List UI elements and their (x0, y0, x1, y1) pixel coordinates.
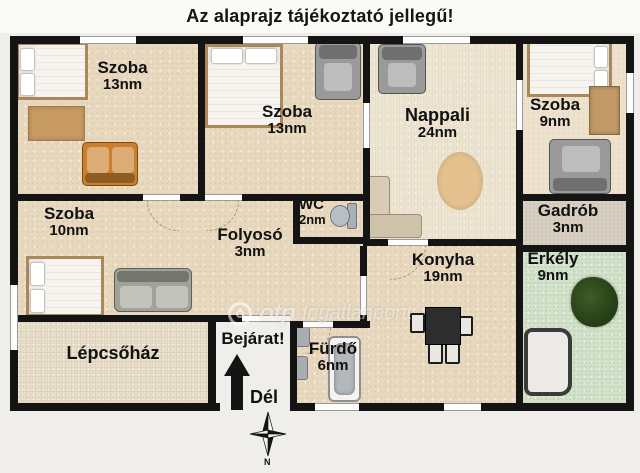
entrance-label: Bejárat! (205, 329, 301, 349)
room-name: Folyosó (200, 226, 300, 244)
window (403, 36, 470, 44)
watermark-brand: otp (259, 299, 295, 328)
door-opening (205, 194, 242, 201)
chair-icon (445, 342, 460, 364)
floor-plan: Az alaprajz tájékoztató jellegű! (0, 0, 640, 473)
room-name: Lépcsőház (48, 344, 178, 363)
oval-rug-icon (437, 152, 483, 210)
armchair-icon (378, 44, 426, 94)
room-label-wc: WC 2nm (299, 197, 333, 227)
wall (363, 36, 370, 103)
door-opening (388, 239, 428, 246)
dining-table-icon (425, 307, 461, 345)
toilet-icon (330, 205, 350, 227)
room-area: 3nm (200, 244, 300, 260)
wall (293, 237, 370, 244)
watermark-ring-icon (228, 302, 252, 326)
door-opening (143, 194, 180, 201)
armchair-icon (549, 139, 611, 194)
room-area: 19nm (393, 269, 493, 285)
room-label-szoba-10: Szoba 10nm (19, 205, 119, 240)
door-opening (363, 103, 370, 148)
window (80, 36, 136, 44)
chair-icon (428, 342, 443, 364)
room-name: Fürdő (302, 340, 364, 358)
room-area: 10nm (19, 223, 119, 239)
arrow-up-icon (231, 374, 243, 410)
room-name: Konyha (393, 251, 493, 269)
room-area: 9nm (503, 268, 603, 284)
compass-rose-icon (246, 411, 290, 457)
direction-label: Dél (250, 387, 278, 408)
wall (428, 239, 523, 246)
room-label-folyoso: Folyosó 3nm (200, 226, 300, 261)
room-name: Erkély (503, 250, 603, 268)
room-name: Szoba (70, 59, 175, 77)
room-label-erkely: Erkély 9nm (503, 250, 603, 285)
wall (516, 130, 523, 201)
page-title: Az alaprajz tájékoztató jellegű! (186, 6, 453, 27)
watermark-logo: otp Ingatlanpont (228, 299, 412, 328)
wall (516, 194, 634, 201)
wall (363, 239, 388, 246)
wall (516, 36, 523, 80)
room-label-nappali: Nappali 24nm (385, 106, 490, 142)
wall (10, 36, 18, 411)
arrow-up-icon (224, 354, 250, 376)
room-label-lepcsohaz: Lépcsőház (48, 344, 178, 363)
room-label-konyha: Konyha 19nm (393, 251, 493, 286)
room-area: 6nm (302, 358, 364, 374)
title-band: Az alaprajz tájékoztató jellegű! (0, 0, 640, 33)
room-label-szoba-9: Szoba 9nm (507, 96, 603, 131)
room-name: Szoba (237, 103, 337, 121)
armchair-icon (315, 42, 361, 100)
wall (10, 315, 242, 322)
sofa-icon (82, 142, 138, 186)
window (315, 403, 359, 411)
wall (10, 194, 143, 201)
room-area: 13nm (237, 121, 337, 137)
chair-icon (410, 313, 425, 333)
room-area: 9nm (507, 114, 603, 130)
window (10, 285, 18, 350)
bench-icon (524, 328, 572, 396)
rug-icon (28, 106, 85, 141)
room-label-szoba-2: Szoba 13nm (237, 103, 337, 138)
room-name: Szoba (507, 96, 603, 114)
room-area: 24nm (385, 125, 490, 141)
wall (180, 194, 205, 201)
corner-sofa-icon (366, 214, 422, 238)
room-label-gadrob: Gadrób 3nm (518, 202, 618, 237)
room-area: 2nm (299, 213, 333, 227)
room-name: Nappali (385, 106, 490, 125)
wall (198, 36, 205, 201)
window (626, 73, 634, 113)
watermark-suffix: Ingatlanpont (302, 302, 412, 325)
room-area: 3nm (518, 220, 618, 236)
compass-north-label: N (264, 457, 271, 467)
room-name: Gadrób (518, 202, 618, 220)
wall (10, 403, 220, 411)
double-bed-icon (26, 256, 104, 317)
room-label-szoba-1: Szoba 13nm (70, 59, 175, 94)
room-name: WC (299, 197, 333, 213)
room-area: 13nm (70, 77, 175, 93)
window (243, 36, 308, 44)
wall (360, 246, 367, 276)
sofa-icon (114, 268, 192, 312)
room-name: Szoba (19, 205, 119, 223)
window (444, 403, 481, 411)
room-label-furdo: Fürdő 6nm (302, 340, 364, 375)
